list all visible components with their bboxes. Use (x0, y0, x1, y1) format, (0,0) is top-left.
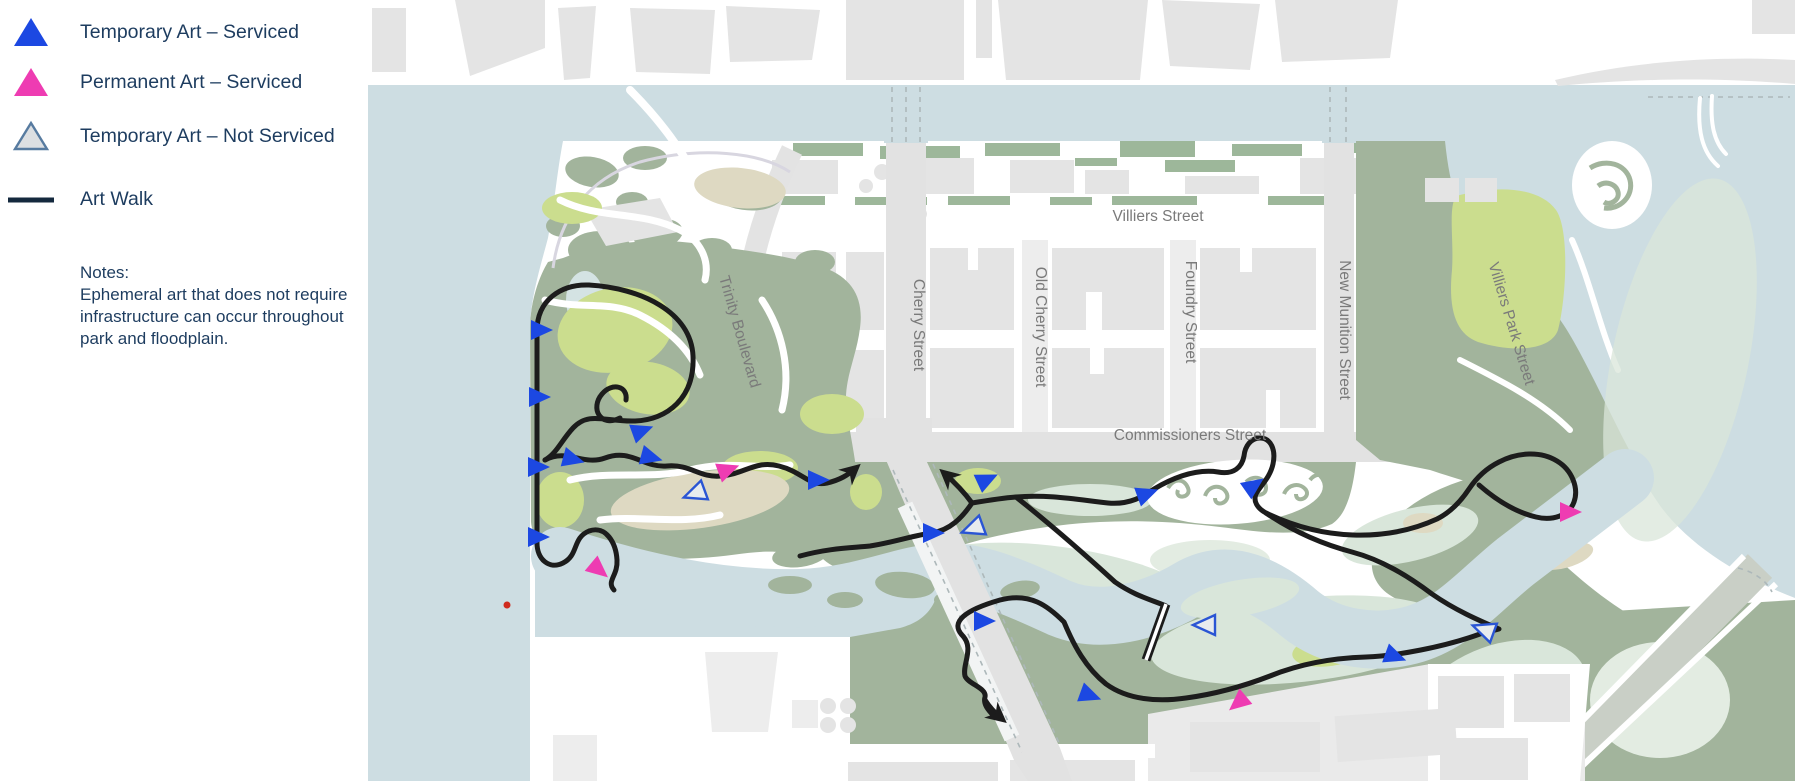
notes-title: Notes: (80, 262, 372, 284)
street-label: Commissioners Street (1114, 427, 1267, 444)
city-blocks-north (372, 0, 1795, 86)
triangle-outline-icon (0, 120, 62, 152)
street-label: Old Cherry Street (1032, 267, 1049, 388)
legend-item-label: Permanent Art – Serviced (62, 71, 302, 94)
street-label: Villiers Street (1112, 208, 1204, 225)
legend: Temporary Art – Serviced Permanent Art –… (0, 0, 368, 781)
triangle-pink-icon (0, 66, 62, 98)
legend-item-temporary-serviced: Temporary Art – Serviced (0, 16, 299, 48)
street-label: Cherry Street (910, 279, 927, 372)
legend-notes: Notes: Ephemeral art that does not requi… (80, 262, 372, 350)
legend-item-label: Art Walk (62, 188, 153, 211)
red-dot (504, 602, 511, 609)
legend-item-permanent-serviced: Permanent Art – Serviced (0, 66, 302, 98)
triangle-blue-icon (0, 16, 62, 48)
legend-item-art-walk: Art Walk (0, 188, 153, 211)
cherry-commissioners-junction (856, 418, 932, 466)
garden-curl (1572, 141, 1652, 229)
street-label: New Munition Street (1336, 260, 1353, 400)
art-walk-plan-page: Temporary Art – Serviced Permanent Art –… (0, 0, 1795, 781)
legend-item-label: Temporary Art – Not Serviced (62, 125, 335, 148)
legend-item-temporary-not-serviced: Temporary Art – Not Serviced (0, 120, 335, 152)
street-label: Foundry Street (1182, 261, 1199, 364)
legend-item-label: Temporary Art – Serviced (62, 21, 299, 44)
south-road (845, 744, 1155, 758)
line-icon (0, 195, 62, 205)
notes-body: Ephemeral art that does not require infr… (80, 284, 372, 350)
